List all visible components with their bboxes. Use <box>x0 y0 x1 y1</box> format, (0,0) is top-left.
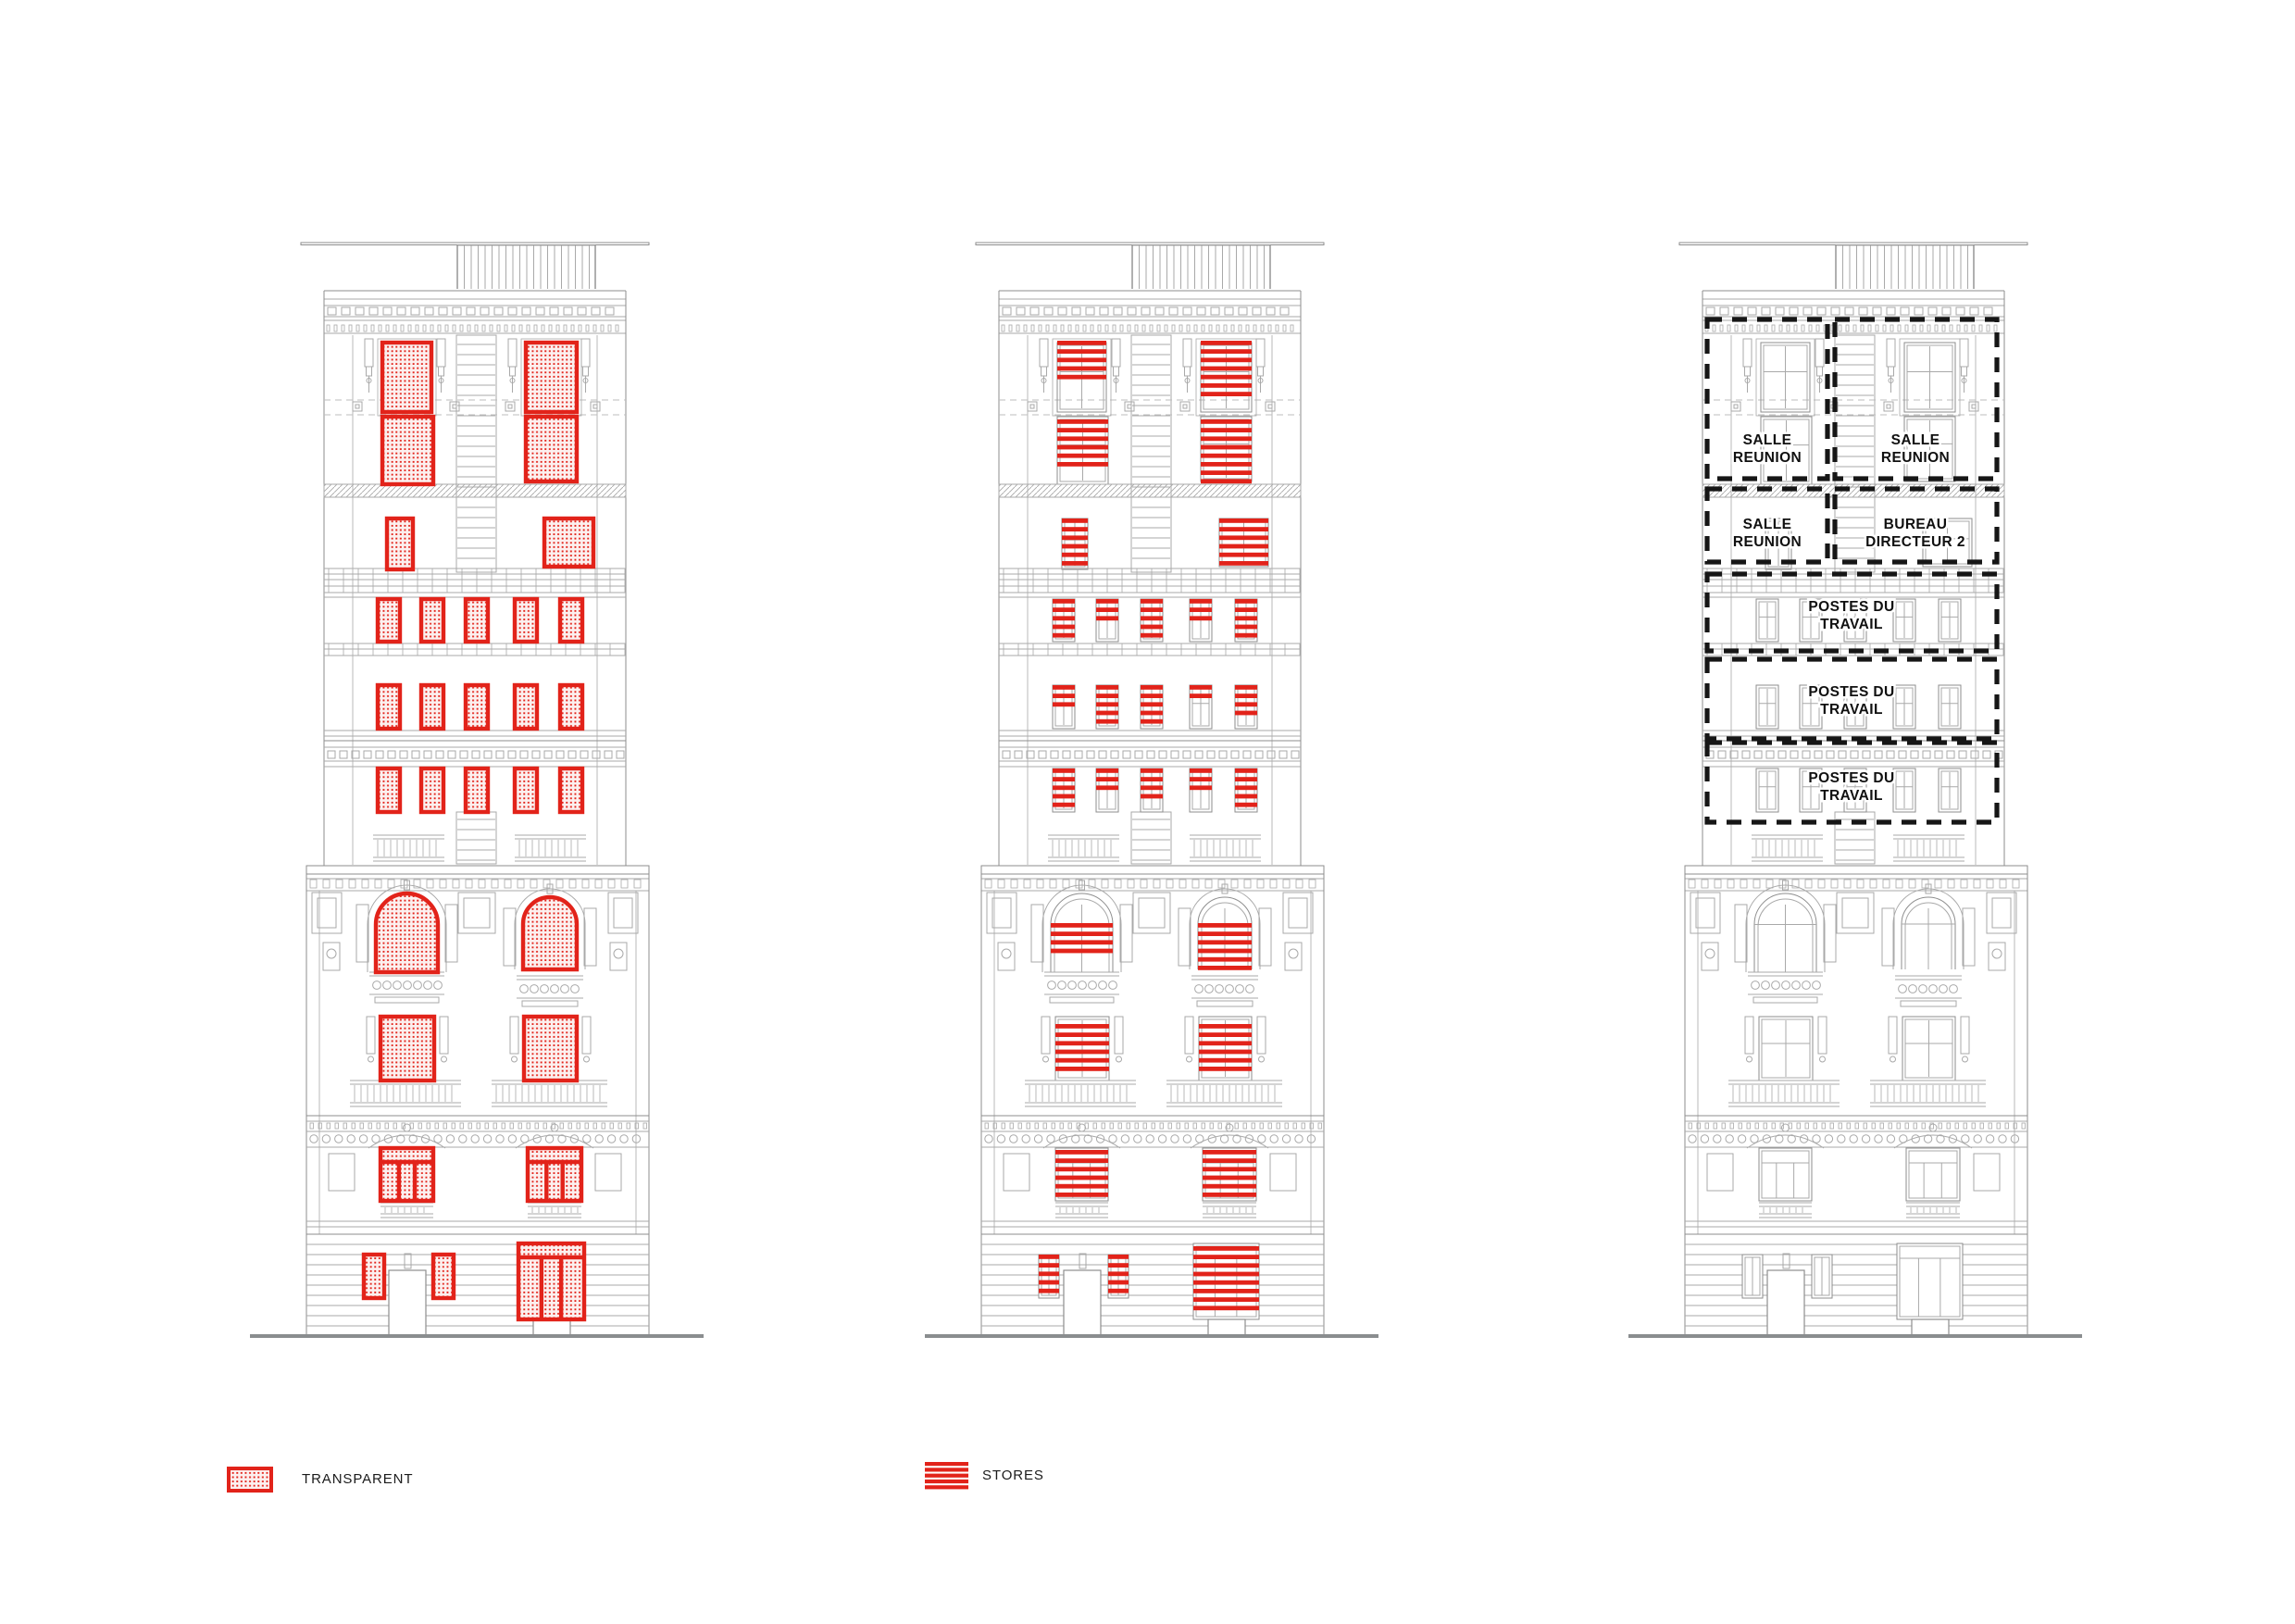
elevation-sheet: SALLEREUNIONSALLEREUNIONSALLEREUNIONBURE… <box>0 0 2295 1624</box>
transparent-hatch-swatch-icon <box>227 1467 273 1493</box>
elevation-transparent <box>245 238 745 1363</box>
legend-item-stores: STORES <box>925 1462 1044 1490</box>
svg-text:BUREAU: BUREAU <box>1884 517 1948 532</box>
svg-text:TRAVAIL: TRAVAIL <box>1820 617 1883 632</box>
svg-text:TRAVAIL: TRAVAIL <box>1820 702 1883 718</box>
svg-text:TRAVAIL: TRAVAIL <box>1820 788 1883 804</box>
transparent-hatch-swatch-svg <box>227 1467 273 1493</box>
legend-item-transparent: TRANSPARENT <box>227 1467 413 1493</box>
svg-text:SALLE: SALLE <box>1743 517 1792 532</box>
stores-stripes-swatch-svg <box>925 1462 968 1490</box>
svg-text:REUNION: REUNION <box>1881 450 1950 466</box>
svg-text:SALLE: SALLE <box>1891 432 1940 448</box>
elevation-stores-svg <box>920 238 1420 1363</box>
legend-label-transparent: TRANSPARENT <box>302 1467 413 1493</box>
svg-text:REUNION: REUNION <box>1733 450 1802 466</box>
svg-text:POSTES DU: POSTES DU <box>1808 770 1894 786</box>
elevation-rooms: SALLEREUNIONSALLEREUNIONSALLEREUNIONBURE… <box>1624 238 2124 1363</box>
elevation-transparent-svg <box>245 238 745 1363</box>
stores-stripes-swatch-icon <box>925 1462 968 1490</box>
svg-text:DIRECTEUR 2: DIRECTEUR 2 <box>1865 534 1965 550</box>
svg-text:REUNION: REUNION <box>1733 534 1802 550</box>
svg-text:POSTES DU: POSTES DU <box>1808 599 1894 615</box>
elevation-rooms-svg: SALLEREUNIONSALLEREUNIONSALLEREUNIONBURE… <box>1624 238 2124 1363</box>
svg-text:SALLE: SALLE <box>1743 432 1792 448</box>
elevation-stores <box>920 238 1420 1363</box>
svg-text:POSTES DU: POSTES DU <box>1808 684 1894 700</box>
legend-label-stores: STORES <box>982 1463 1044 1489</box>
